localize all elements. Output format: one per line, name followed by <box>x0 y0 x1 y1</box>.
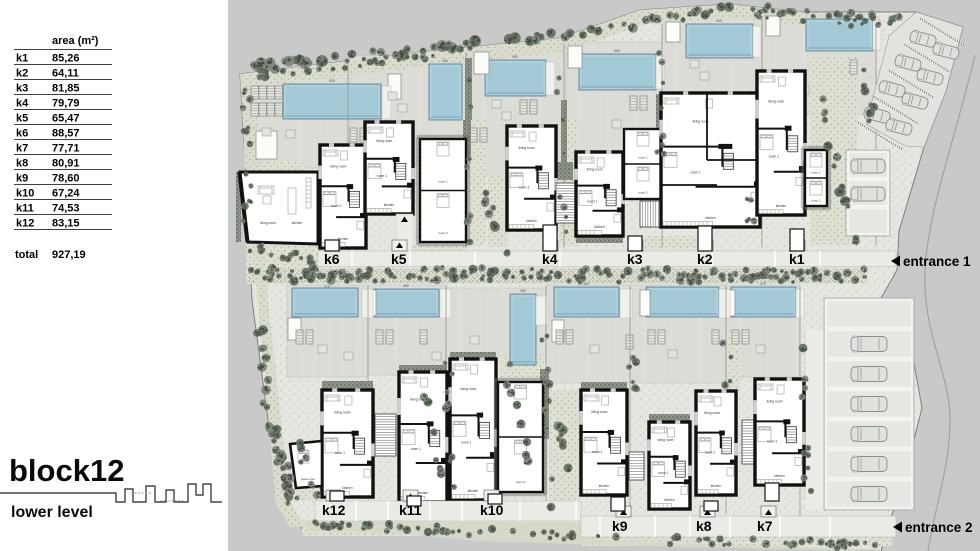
svg-text:kitchen: kitchen <box>418 491 429 495</box>
svg-text:room 1: room 1 <box>769 154 779 158</box>
svg-text:room 1: room 1 <box>377 174 387 178</box>
svg-text:83,15: 83,15 <box>52 218 80 230</box>
svg-text:64,11: 64,11 <box>52 68 79 80</box>
svg-text:living room: living room <box>376 139 392 143</box>
svg-text:room 1: room 1 <box>519 185 529 189</box>
svg-text:600: 600 <box>679 282 685 286</box>
svg-text:78,60: 78,60 <box>52 173 80 185</box>
svg-text:k10: k10 <box>16 188 34 200</box>
svg-text:room 1: room 1 <box>331 204 341 208</box>
svg-text:k9: k9 <box>16 173 28 185</box>
svg-text:kitchen: kitchen <box>711 484 722 488</box>
svg-text:k6: k6 <box>16 128 28 140</box>
svg-text:room 1: room 1 <box>438 179 448 183</box>
svg-text:k12: k12 <box>322 502 346 518</box>
svg-text:room 1: room 1 <box>592 450 602 454</box>
svg-text:k5: k5 <box>391 251 407 267</box>
svg-text:550: 550 <box>403 284 409 288</box>
svg-text:living room: living room <box>704 411 720 415</box>
svg-text:room 2: room 2 <box>438 231 448 235</box>
svg-text:k7: k7 <box>16 143 28 155</box>
svg-text:k9: k9 <box>612 518 628 534</box>
svg-text:85,26: 85,26 <box>52 53 80 65</box>
svg-text:79,79: 79,79 <box>52 98 80 110</box>
svg-text:575: 575 <box>324 285 330 289</box>
svg-text:k8: k8 <box>696 518 712 534</box>
svg-text:room 2: room 2 <box>811 199 821 203</box>
svg-text:room 1: room 1 <box>587 199 597 203</box>
svg-text:k11: k11 <box>16 203 34 215</box>
svg-text:room 1: room 1 <box>767 440 777 444</box>
svg-text:250: 250 <box>442 59 448 63</box>
svg-text:500: 500 <box>716 19 722 23</box>
svg-text:927,19: 927,19 <box>52 249 86 261</box>
svg-text:475: 475 <box>760 282 766 286</box>
svg-text:kitchen: kitchen <box>468 489 479 493</box>
svg-text:total: total <box>15 249 38 261</box>
svg-text:74,53: 74,53 <box>52 203 80 215</box>
svg-text:living room: living room <box>657 438 673 442</box>
svg-text:kitchen: kitchen <box>526 219 537 223</box>
svg-text:kitchen: kitchen <box>594 225 605 229</box>
svg-text:room 1: room 1 <box>411 447 421 451</box>
svg-text:kitchen: kitchen <box>664 498 675 502</box>
svg-text:88,57: 88,57 <box>52 128 80 140</box>
svg-text:500: 500 <box>512 55 518 59</box>
svg-text:living room: living room <box>260 221 276 225</box>
svg-text:living room: living room <box>519 146 535 150</box>
svg-text:area (m²): area (m²) <box>52 35 99 47</box>
svg-text:living room: living room <box>330 165 346 169</box>
svg-text:600: 600 <box>329 79 335 83</box>
svg-text:kitchen: kitchen <box>705 216 716 220</box>
svg-text:k5: k5 <box>16 113 28 125</box>
svg-text:81,85: 81,85 <box>52 83 80 95</box>
svg-text:460: 460 <box>583 282 589 286</box>
svg-text:entrance 2: entrance 2 <box>905 520 973 535</box>
svg-text:k4: k4 <box>542 251 558 267</box>
svg-text:kitchen: kitchen <box>774 474 785 478</box>
svg-text:67,24: 67,24 <box>52 188 80 200</box>
svg-text:750: 750 <box>836 14 842 18</box>
svg-text:kitchen: kitchen <box>599 484 610 488</box>
svg-text:kitchen: kitchen <box>776 204 787 208</box>
svg-text:room 1: room 1 <box>658 471 668 475</box>
svg-text:k1: k1 <box>16 53 28 65</box>
svg-text:k2: k2 <box>697 251 713 267</box>
svg-text:living room: living room <box>460 387 476 391</box>
svg-text:k12: k12 <box>16 218 34 230</box>
svg-text:room 1: room 1 <box>811 171 821 175</box>
svg-text:entrance 1: entrance 1 <box>903 254 971 269</box>
svg-text:kitchen: kitchen <box>292 221 303 225</box>
svg-text:room 2: room 2 <box>516 480 526 484</box>
svg-text:280: 280 <box>520 289 526 293</box>
svg-text:room 1: room 1 <box>638 155 648 159</box>
svg-text:living room: living room <box>587 167 603 171</box>
svg-text:k8: k8 <box>16 158 28 170</box>
svg-text:k4: k4 <box>16 98 29 110</box>
svg-text:living room: living room <box>768 100 784 104</box>
svg-text:kitchen: kitchen <box>384 203 395 207</box>
svg-text:block12: block12 <box>9 453 124 488</box>
svg-text:k3: k3 <box>627 251 643 267</box>
svg-text:living room: living room <box>767 399 783 403</box>
svg-text:room 2: room 2 <box>638 190 648 194</box>
svg-text:kitchen: kitchen <box>342 486 353 490</box>
svg-text:k1: k1 <box>789 251 805 267</box>
svg-text:room 1: room 1 <box>335 451 345 455</box>
svg-text:77,71: 77,71 <box>52 143 80 155</box>
svg-text:guest room: guest room <box>301 477 316 481</box>
svg-text:room 1: room 1 <box>691 170 701 174</box>
svg-text:living room: living room <box>591 410 607 414</box>
svg-text:k3: k3 <box>16 83 28 95</box>
svg-text:k7: k7 <box>757 518 773 534</box>
svg-text:650: 650 <box>614 49 620 53</box>
svg-text:living room: living room <box>334 411 350 415</box>
svg-text:lower level: lower level <box>11 504 93 521</box>
svg-text:k6: k6 <box>324 251 340 267</box>
svg-text:65,47: 65,47 <box>52 113 80 125</box>
svg-text:k2: k2 <box>16 68 28 80</box>
svg-text:80,91: 80,91 <box>52 158 80 170</box>
svg-text:room 1: room 1 <box>705 450 715 454</box>
svg-text:room 1: room 1 <box>461 441 471 445</box>
